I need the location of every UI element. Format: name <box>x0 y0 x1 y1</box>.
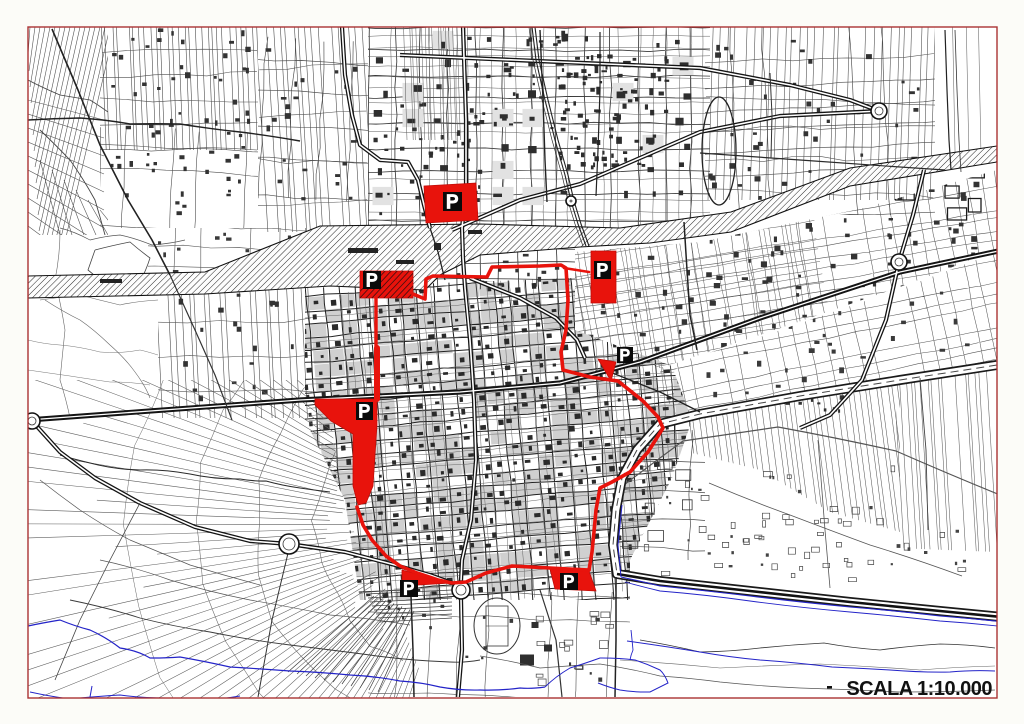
svg-text:SCALA 1:10.000: SCALA 1:10.000 <box>846 678 992 700</box>
